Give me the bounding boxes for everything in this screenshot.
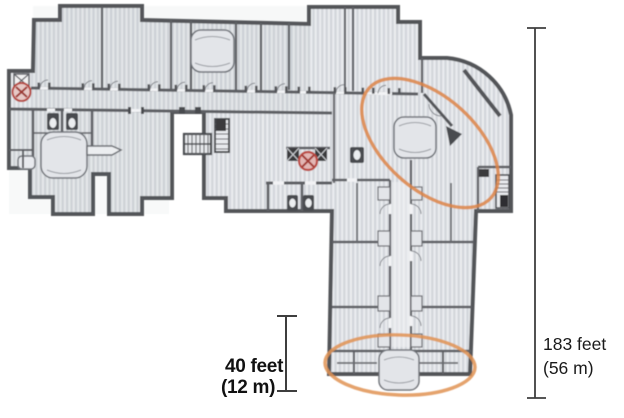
svg-text:(12 m): (12 m) — [221, 377, 275, 398]
svg-text:40 feet: 40 feet — [225, 356, 284, 377]
svg-text:183 feet: 183 feet — [543, 334, 606, 354]
svg-text:(56 m): (56 m) — [543, 358, 594, 378]
